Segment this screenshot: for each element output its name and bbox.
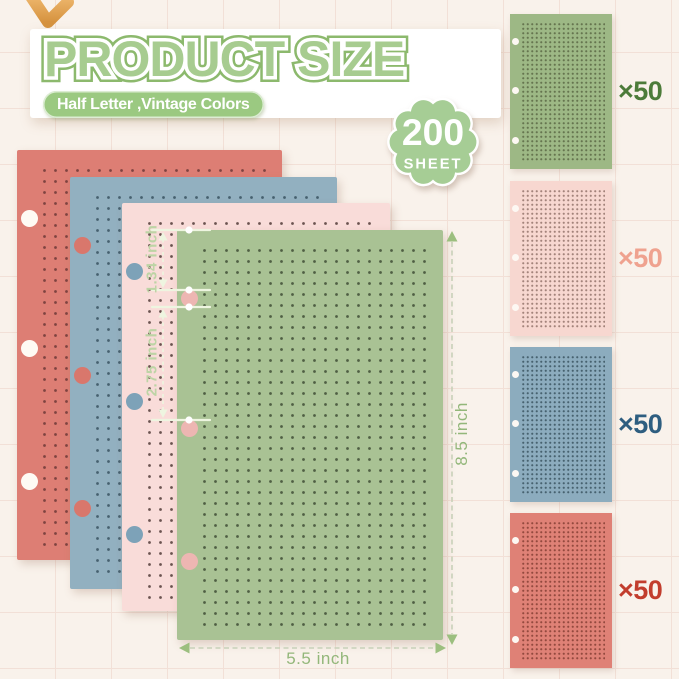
punch-hole: [512, 420, 519, 427]
punch-hole: [126, 526, 143, 543]
measure-hole-offset-label: 1.34 inch: [144, 225, 161, 294]
punch-hole: [512, 636, 519, 643]
swatch-pink: [510, 181, 612, 336]
punch-hole: [74, 237, 91, 254]
punch-hole: [512, 537, 519, 544]
punch-hole: [181, 420, 198, 437]
dot-grid: [199, 245, 431, 628]
punch-hole: [21, 473, 38, 490]
punch-hole: [512, 304, 519, 311]
swatch-blue: [510, 347, 612, 502]
page-title-text: PRODUCT SIZE: [44, 31, 404, 87]
punch-hole: [181, 290, 198, 307]
punch-hole: [512, 254, 519, 261]
punch-hole: [181, 553, 198, 570]
punch-hole: [74, 367, 91, 384]
product-size-infographic: PRODUCT SIZE PRODUCT SIZE PRODUCT SIZE H…: [0, 0, 679, 679]
punch-hole: [512, 137, 519, 144]
measure-hole-spacing-label: 2.75 inch: [144, 328, 161, 397]
punch-hole: [512, 470, 519, 477]
punch-hole: [512, 586, 519, 593]
swatch-green-count: ×50: [618, 14, 676, 169]
swatch-red-count: ×50: [618, 513, 676, 668]
swatch-pink-count: ×50: [618, 181, 676, 336]
swatch-green: [510, 14, 612, 169]
dot-grid: [521, 521, 605, 661]
dot-grid: [521, 189, 605, 329]
swatch-red: [510, 513, 612, 668]
punch-hole: [21, 210, 38, 227]
punch-hole: [512, 371, 519, 378]
punch-hole: [512, 87, 519, 94]
punch-hole: [126, 263, 143, 280]
badge-count: 200: [402, 111, 464, 153]
dot-grid: [521, 22, 605, 162]
punch-hole: [512, 38, 519, 45]
punch-hole: [512, 205, 519, 212]
dot-grid: [521, 355, 605, 495]
badge-unit: SHEET: [404, 156, 463, 172]
punch-hole: [74, 500, 91, 517]
punch-hole: [126, 393, 143, 410]
sheet-sage-green: [177, 230, 443, 640]
subtitle-pill: Half Letter ,Vintage Colors: [43, 91, 264, 118]
punch-hole: [21, 340, 38, 357]
measure-height-label: 8.5 inch: [452, 402, 472, 466]
swatch-blue-count: ×50: [618, 347, 676, 502]
measure-width-label: 5.5 inch: [286, 649, 350, 669]
sheet-count-badge: 200 SHEET: [381, 90, 485, 194]
